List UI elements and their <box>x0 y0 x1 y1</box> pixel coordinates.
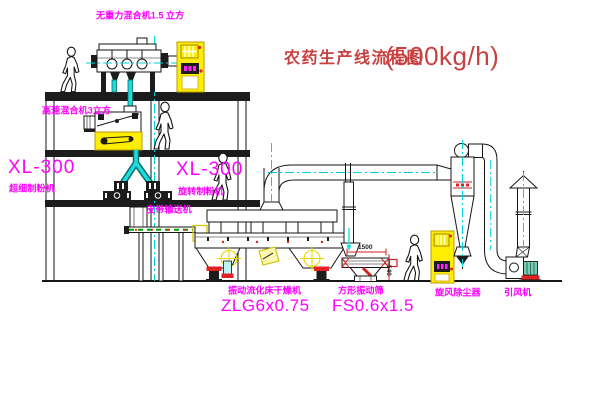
label-dryer-model: ZLG6x0.75 <box>221 297 310 314</box>
tilted-panel <box>259 247 279 265</box>
label-mill-right-model: XL-300 <box>176 160 243 179</box>
label-cyclone: 旋风除尘器 <box>435 289 481 298</box>
label-mill-right-name: 旋转制粉机 <box>178 188 224 197</box>
diagram-title-capacity: (500kg/h) <box>385 43 499 69</box>
mill-discharge-chute <box>130 207 147 227</box>
label-high-speed-mixer: 高速混合机3立方 <box>42 107 111 116</box>
label-gravity-mixer: 无重力混合机1.5 立方 <box>96 12 184 21</box>
induced-draft-fan <box>506 257 542 282</box>
control-cabinet-top <box>177 42 204 92</box>
fluid-bed-dryer <box>195 202 345 282</box>
label-fan: 引风机 <box>504 289 531 298</box>
person-figure <box>404 235 422 280</box>
label-mill-left-name: 超细制粉机 <box>9 185 55 194</box>
label-sieve-model: FS0.6x1.5 <box>332 297 414 314</box>
label-sieve-name: 方形振动筛 <box>338 287 384 296</box>
person-figure <box>61 47 79 91</box>
flow-diagram-canvas: 农药生产线流程图 (500kg/h) 无重力混合机1.5 立方 高速混合机3立方… <box>0 0 600 403</box>
indicator-dot <box>198 46 201 49</box>
pulverizer-right <box>144 181 172 200</box>
control-cabinet-right <box>431 231 454 283</box>
label-mill-left-model: XL-300 <box>8 158 75 177</box>
dimension-sieve-height: 540 <box>385 265 392 276</box>
label-dryer-name: 振动流化床干燥机 <box>228 287 301 296</box>
dimension-sieve-length: 1500 <box>358 245 372 252</box>
label-belt-conveyor: 皮带输送机 <box>146 206 192 215</box>
exhaust-duct <box>264 143 447 205</box>
vibration-motor <box>224 261 232 274</box>
pulverizer-left <box>103 181 131 200</box>
